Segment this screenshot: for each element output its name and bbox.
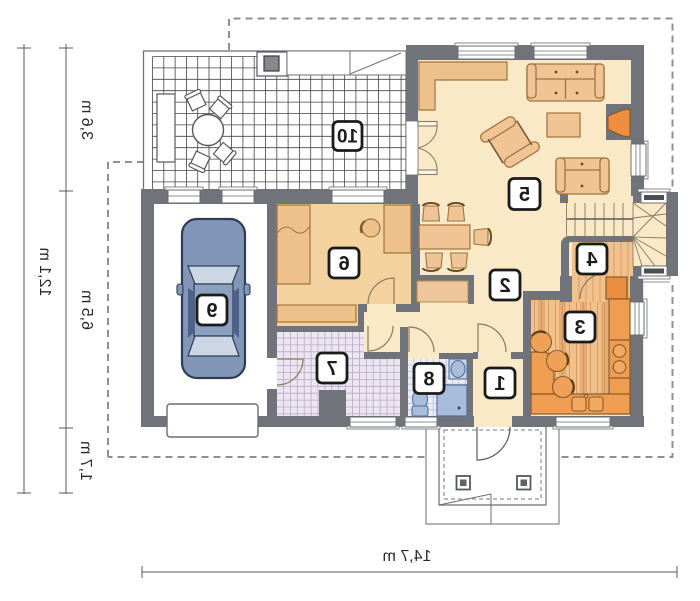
svg-text:7: 7 <box>326 358 337 380</box>
svg-text:10: 10 <box>337 127 358 148</box>
svg-text:6,5 m: 6,5 m <box>78 290 95 330</box>
svg-text:6: 6 <box>338 253 349 275</box>
svg-text:1: 1 <box>494 373 505 395</box>
svg-text:5: 5 <box>519 184 530 206</box>
svg-text:14,7 m: 14,7 m <box>383 548 432 565</box>
svg-text:8: 8 <box>423 369 434 391</box>
svg-text:2: 2 <box>499 275 510 297</box>
svg-text:3: 3 <box>574 317 585 339</box>
svg-text:4: 4 <box>586 249 598 271</box>
svg-text:12,1 m: 12,1 m <box>36 248 53 297</box>
svg-text:1,7 m: 1,7 m <box>77 441 94 481</box>
svg-text:9: 9 <box>206 300 217 322</box>
svg-text:3,6 m: 3,6 m <box>78 100 95 140</box>
